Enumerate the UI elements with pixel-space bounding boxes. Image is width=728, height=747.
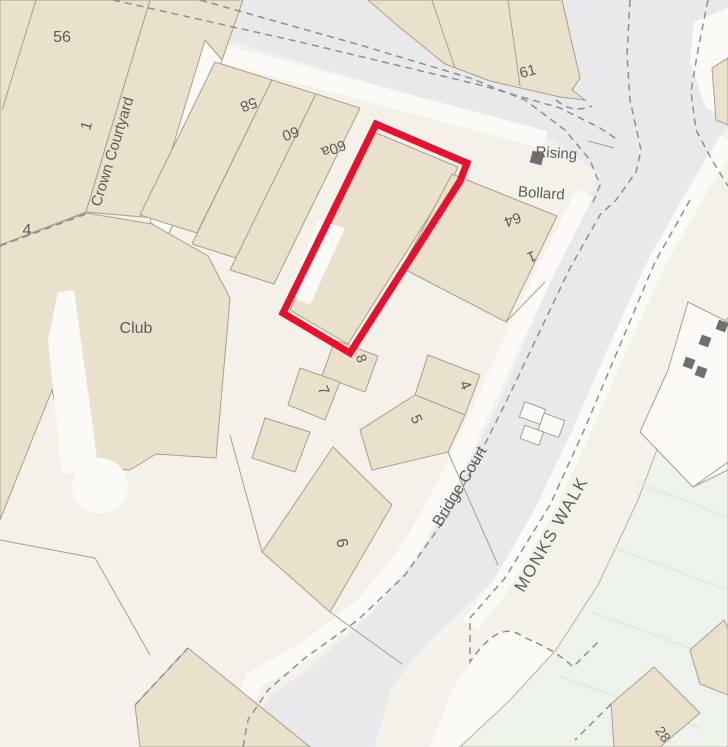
map-canvas[interactable]: 56 1 Crown Courtyard 4 58 60 60a 61 Risi…: [0, 0, 728, 747]
label-rising: Rising: [535, 144, 578, 164]
label-club: Club: [120, 320, 153, 337]
label-bollard: Bollard: [517, 183, 565, 203]
label-56: 56: [53, 29, 71, 46]
label-4-left: 4: [23, 222, 32, 239]
club-notch: [72, 458, 128, 514]
